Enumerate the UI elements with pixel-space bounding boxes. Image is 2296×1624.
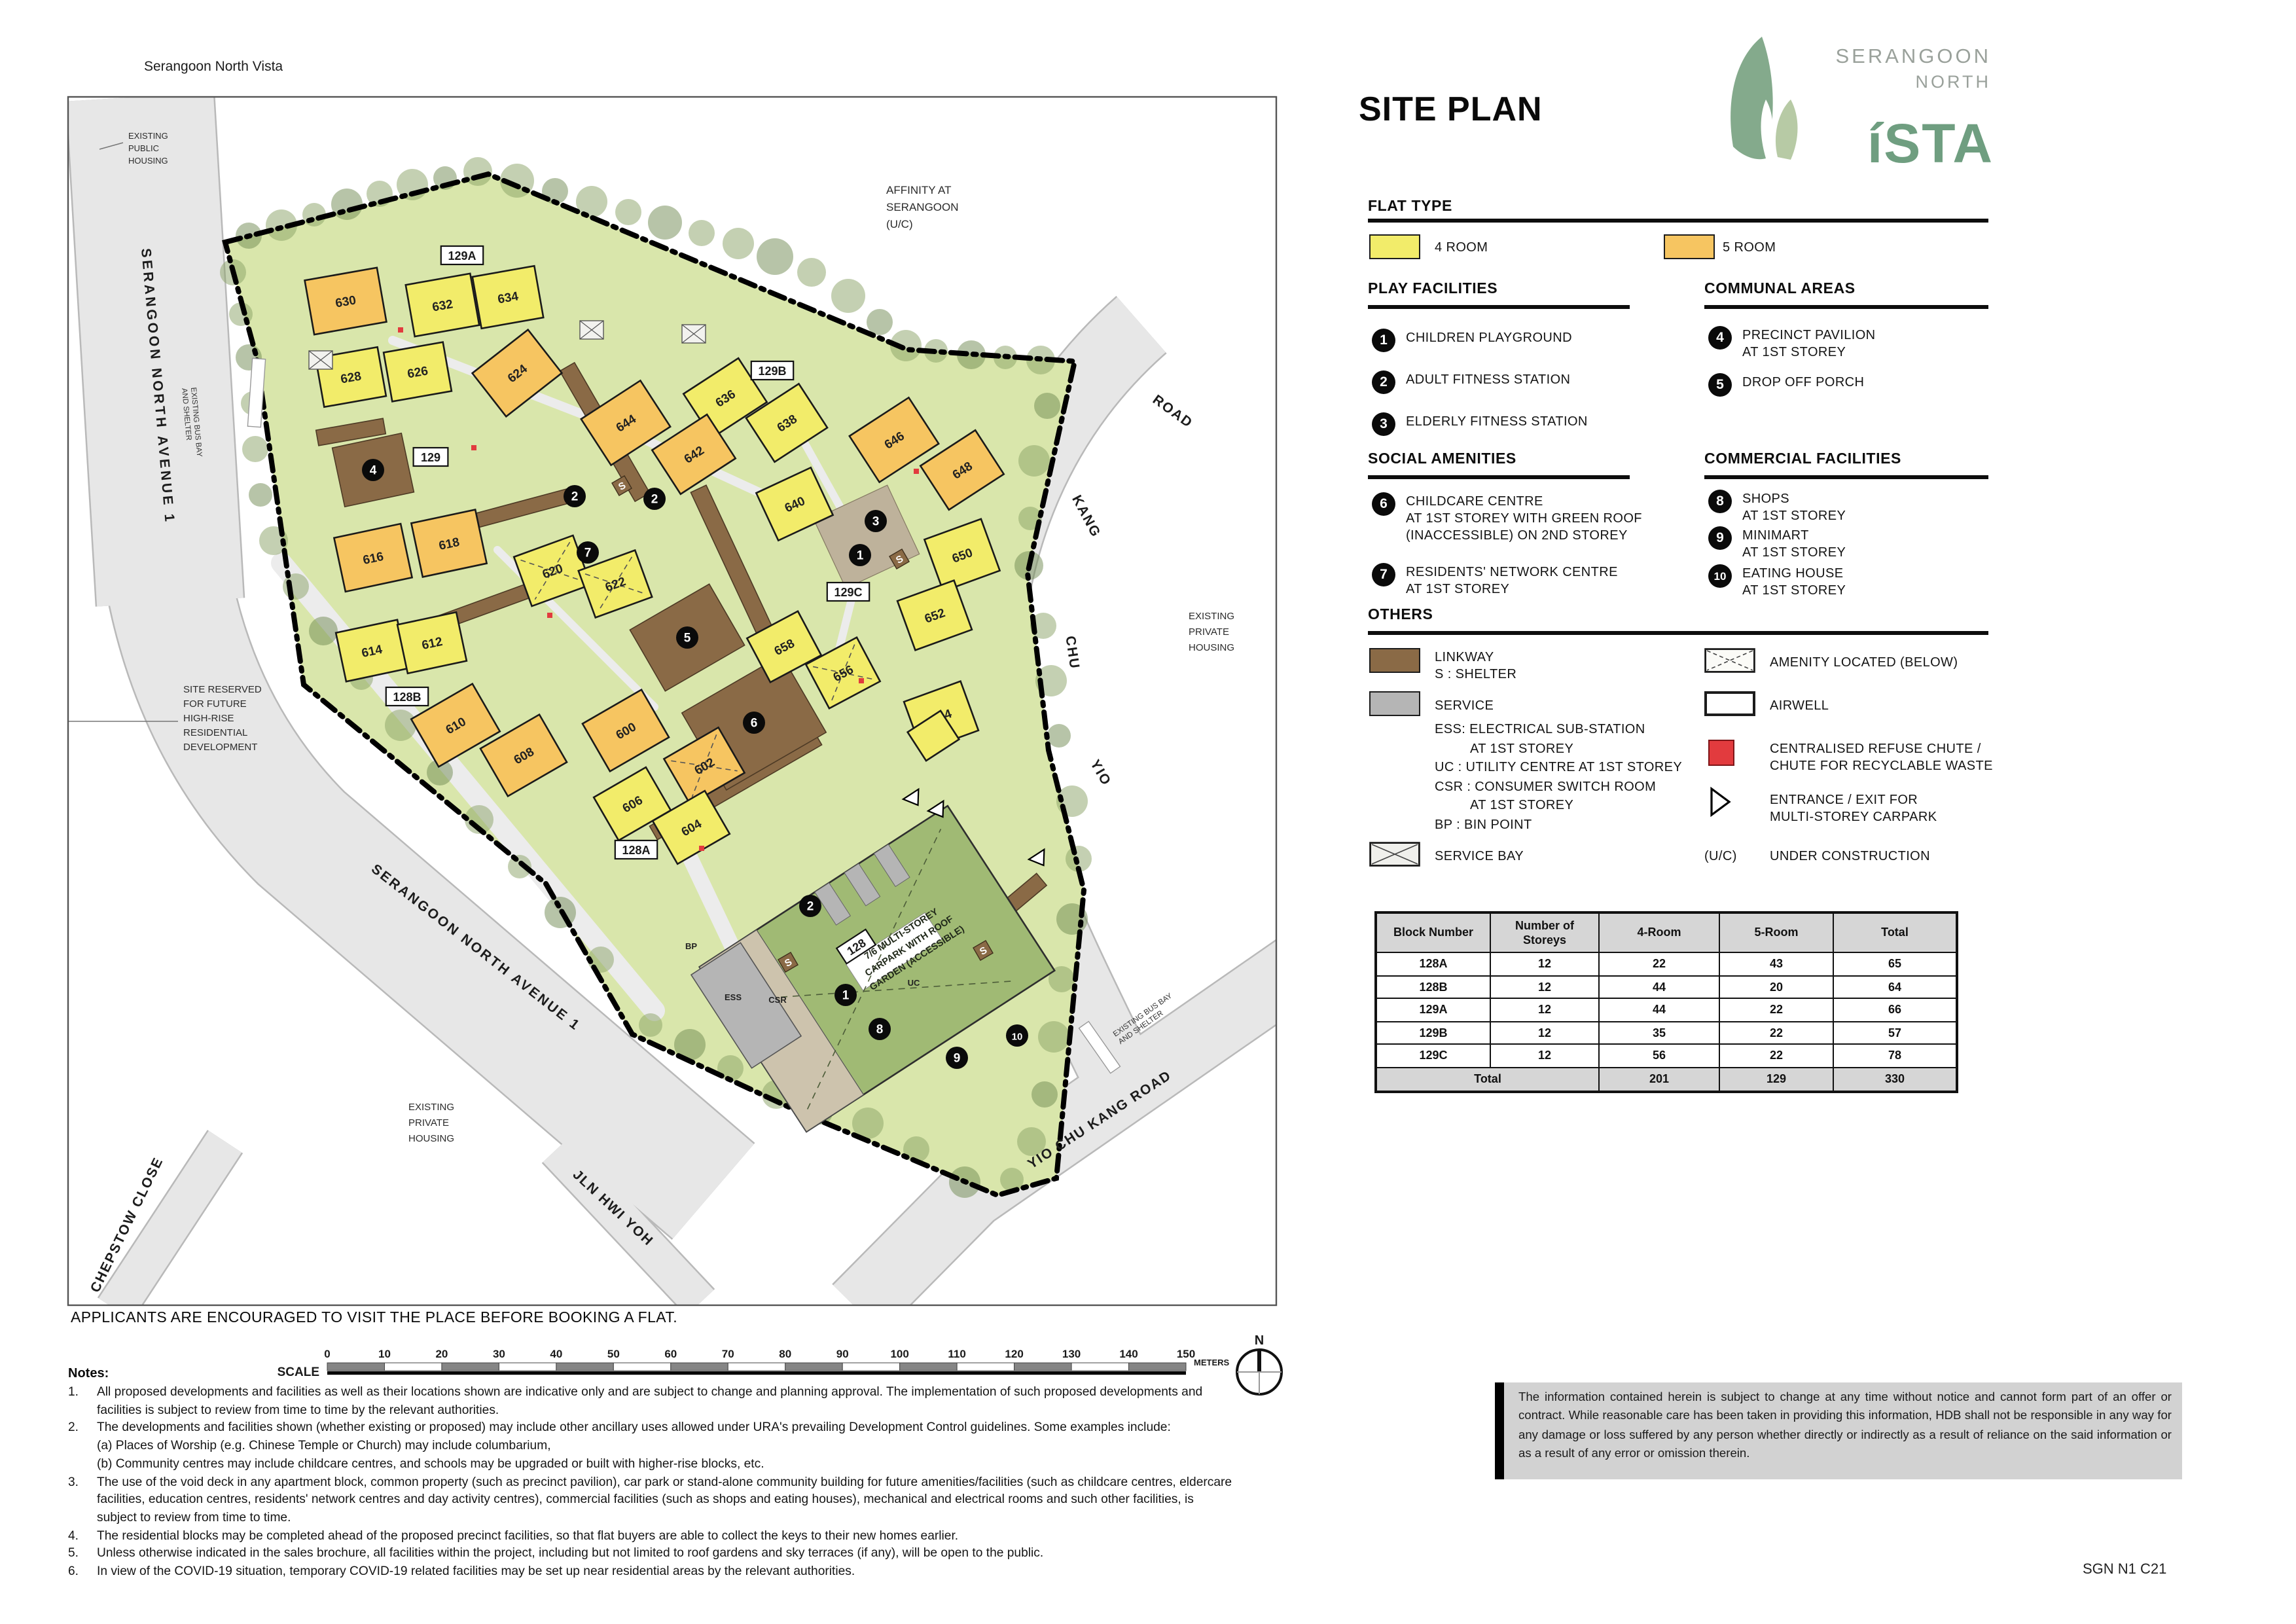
- flat-4room-label: 4 ROOM: [1435, 240, 1488, 257]
- site-plan-page: 7/6 MULTI-STOREYCARPARK WITH ROOFGARDEN …: [0, 0, 2296, 1623]
- applicants-note: APPLICANTS ARE ENCOURAGED TO VISIT THE P…: [71, 1310, 677, 1326]
- tree-icon: [309, 617, 338, 645]
- scale-tick: 40: [550, 1348, 562, 1360]
- facility-marker-label: 5: [684, 631, 691, 645]
- tree-icon: [1047, 724, 1071, 748]
- block-tag-128B: 128B: [386, 687, 428, 706]
- road-label: KANG: [1069, 493, 1103, 540]
- doc-ref: SGN N1 C21: [2083, 1562, 2166, 1578]
- flat-5room-label: 5 ROOM: [1723, 240, 1776, 257]
- area-label: PRIVATE: [408, 1117, 449, 1128]
- tree-icon: [1038, 1021, 1069, 1053]
- tree-icon: [723, 228, 754, 259]
- building-626: 626: [384, 342, 452, 402]
- legend-item-minimart: 9 MINIMARTAT 1ST STOREY: [1708, 526, 1846, 562]
- table-total-row: Total201129330: [1376, 1067, 1957, 1091]
- block-tag-129A: 129A: [441, 246, 483, 264]
- facility-marker-2: 2: [799, 895, 821, 917]
- note-2-line-3: (b) Community centres may include childc…: [68, 1456, 1482, 1473]
- scale-tick: 90: [836, 1348, 849, 1360]
- note-6-line-1: 6.In view of the COVID-19 situation, tem…: [68, 1563, 1482, 1581]
- refuse-chute-icon: [859, 678, 864, 683]
- marker-4-badge: 4: [1708, 326, 1732, 350]
- block-tag-label: 129A: [448, 249, 476, 262]
- service-bay-swatch: [1369, 842, 1420, 867]
- scale-bar: SCALE01020304050607080901001101201301401…: [278, 1348, 1230, 1379]
- note-1-line-2: facilities is subject to review from tim…: [68, 1401, 1482, 1419]
- facility-marker-1: 1: [834, 984, 857, 1006]
- uc-abbr: (U/C): [1704, 848, 1737, 865]
- refuse-chute-icon: [547, 613, 552, 618]
- service-bay-icon: [309, 351, 332, 369]
- facility-marker-2: 2: [564, 485, 586, 507]
- scale-tick: 130: [1062, 1348, 1081, 1360]
- facility-marker-label: 10: [1012, 1031, 1023, 1042]
- linkway-swatch: [1369, 648, 1420, 673]
- scale-label: SCALE: [278, 1365, 319, 1379]
- facility-marker-label: 2: [807, 899, 814, 913]
- tree-icon: [1000, 1168, 1024, 1191]
- facility-marker-7: 7: [577, 541, 599, 564]
- area-label: HIGH-RISE: [183, 713, 234, 724]
- map-title: Serangoon North Vista: [144, 59, 283, 75]
- legend-item-childcare-centre: 6 CHILDCARE CENTREAT 1ST STOREY WITH GRE…: [1372, 492, 1642, 545]
- scale-tick: 150: [1177, 1348, 1195, 1360]
- disclaimer-box: The information contained herein is subj…: [1495, 1382, 2182, 1479]
- uc-label: UNDER CONSTRUCTION: [1770, 848, 1930, 865]
- serangoon-north-vista-logo: SERANGOON NORTH íSTA: [1723, 34, 1998, 181]
- airwell-label: AIRWELL: [1770, 698, 1829, 715]
- area-label: SITE RESERVED: [183, 684, 262, 695]
- compass-north-label: N: [1255, 1333, 1264, 1348]
- unit-count-table: Block Number Number of Storeys 4-Room 5-…: [1374, 911, 1958, 1092]
- social-divider: [1368, 475, 1630, 478]
- legend-item-adult-fitness: 2 ADULT FITNESS STATION: [1372, 370, 1570, 394]
- utility-label-UC: UC: [908, 978, 920, 988]
- play-facilities-heading: PLAY FACILITIES: [1368, 281, 1498, 297]
- communal-areas-heading: COMMUNAL AREAS: [1704, 281, 1856, 297]
- tree-icon: [242, 436, 268, 462]
- note-5-line-1: 5.Unless otherwise indicated in the sale…: [68, 1545, 1482, 1563]
- flat-4room-swatch: [1369, 234, 1420, 259]
- communal-divider: [1704, 305, 1988, 308]
- service-bay-icon: [580, 321, 603, 339]
- road-label: CHU: [1062, 635, 1082, 670]
- area-label: HOUSING: [408, 1133, 454, 1144]
- utility-label-BP: BP: [685, 941, 697, 951]
- refuse-chute-icon: [398, 327, 403, 333]
- commercial-divider: [1704, 475, 1988, 478]
- utility-label-ESS: ESS: [725, 992, 742, 1002]
- facility-marker-3: 3: [865, 510, 887, 532]
- notes-list: 1.All proposed developments and faciliti…: [68, 1384, 1482, 1581]
- area-label: SERANGOON: [886, 201, 959, 213]
- tree-icon: [576, 186, 607, 217]
- service-bay-icon: [682, 325, 706, 343]
- tree-icon: [1034, 393, 1060, 419]
- table-row: 129B12352257: [1376, 1021, 1957, 1044]
- area-label: (U/C): [886, 218, 913, 230]
- building-630: 630: [305, 268, 387, 334]
- tree-icon: [615, 199, 641, 225]
- facility-marker-1: 1: [849, 544, 871, 566]
- facility-marker-6: 6: [743, 712, 765, 734]
- tree-icon: [639, 1013, 662, 1037]
- table-row: 129C12562278: [1376, 1044, 1957, 1067]
- site-plan-map: 7/6 MULTI-STOREYCARPARK WITH ROOFGARDEN …: [0, 0, 2296, 1623]
- block-tag-label: 128A: [622, 844, 650, 857]
- logo-line3: íSTA: [1867, 113, 1994, 174]
- scale-unit: METERS: [1194, 1358, 1230, 1367]
- refuse-chute-icon: [471, 445, 476, 450]
- legend-item-children-playground: 1 CHILDREN PLAYGROUND: [1372, 329, 1572, 352]
- area-label: EXISTING: [128, 131, 168, 141]
- note-4-line-1: 4.The residential blocks may be complete…: [68, 1527, 1482, 1545]
- refuse-chute-icon: [699, 846, 704, 851]
- road-label: YIO: [1087, 757, 1114, 789]
- facility-marker-label: 6: [751, 716, 758, 730]
- block-tag-label: 129C: [834, 586, 862, 599]
- scale-tick: 50: [607, 1348, 620, 1360]
- legend-item-elderly-fitness: 3 ELDERLY FITNESS STATION: [1372, 412, 1588, 436]
- marker-7-badge: 7: [1372, 563, 1395, 586]
- refuse-chute-swatch: [1708, 740, 1734, 766]
- facility-marker-label: 2: [651, 492, 658, 506]
- notes-heading: Notes:: [68, 1367, 109, 1381]
- flat-type-divider: [1368, 219, 1988, 222]
- facility-marker-label: 4: [370, 463, 377, 477]
- tree-icon: [1018, 445, 1050, 477]
- utility-label-CSR: CSR: [768, 995, 787, 1005]
- marker-6-badge: 6: [1372, 492, 1395, 516]
- facility-marker-label: 2: [571, 490, 579, 503]
- tree-icon: [249, 483, 272, 507]
- note-1-line-1: 1.All proposed developments and faciliti…: [68, 1384, 1482, 1401]
- scale-tick: 100: [890, 1348, 908, 1360]
- scale-tick: 120: [1005, 1348, 1023, 1360]
- area-label: DEVELOPMENT: [183, 742, 257, 753]
- tree-icon: [757, 238, 793, 275]
- marker-1-badge: 1: [1372, 329, 1395, 352]
- block-tag-129: 129: [414, 448, 448, 466]
- others-heading: OTHERS: [1368, 607, 1433, 623]
- area-label: AFFINITY AT: [886, 184, 952, 196]
- flat-5room-swatch: [1664, 234, 1715, 259]
- tree-icon: [1031, 1081, 1058, 1108]
- marker-10-badge: 10: [1708, 564, 1732, 588]
- scale-tick: 140: [1119, 1348, 1138, 1360]
- logo-line1: SERANGOON: [1835, 45, 1991, 67]
- table-row: 128A12224365: [1376, 952, 1957, 975]
- tree-icon: [689, 220, 715, 246]
- table-header-row: Block Number Number of Storeys 4-Room 5-…: [1376, 912, 1957, 952]
- scale-tick: 10: [378, 1348, 391, 1360]
- service-bay-label: SERVICE BAY: [1435, 848, 1524, 865]
- scale-tick: 70: [722, 1348, 734, 1360]
- facility-marker-2: 2: [643, 488, 666, 510]
- area-label: EXISTING: [1189, 611, 1234, 622]
- area-label: PUBLIC: [128, 143, 159, 153]
- linkway-label: LINKWAY S : SHELTER: [1435, 649, 1516, 683]
- social-amenities-heading: SOCIAL AMENITIES: [1368, 452, 1516, 467]
- legend-item-shops: 8 SHOPSAT 1ST STOREY: [1708, 490, 1846, 525]
- service-definitions: ESS: ELECTRICAL SUB-STATION AT 1ST STORE…: [1435, 721, 1775, 836]
- tree-icon: [831, 279, 865, 313]
- scale-tick: 20: [435, 1348, 448, 1360]
- facility-marker-label: 9: [954, 1051, 961, 1065]
- building-632: 632: [406, 274, 479, 336]
- logo-line2: NORTH: [1915, 72, 1991, 92]
- scale-tick: 0: [324, 1348, 330, 1360]
- note-3-line-2: facilities, education centres, residents…: [68, 1491, 1482, 1509]
- marker-5-badge: 5: [1708, 373, 1732, 397]
- block-tag-label: 129B: [758, 365, 786, 378]
- facility-marker-10: 10: [1006, 1024, 1028, 1047]
- block-tag-129C: 129C: [827, 583, 869, 601]
- area-label: EXISTING: [408, 1102, 454, 1113]
- marker-8-badge: 8: [1708, 490, 1732, 513]
- service-swatch: [1369, 691, 1420, 716]
- facility-marker-label: 7: [584, 546, 592, 560]
- scale-tick: 60: [664, 1348, 677, 1360]
- block-tag-128A: 128A: [615, 840, 657, 859]
- tree-icon: [385, 710, 416, 741]
- refuse-chute-label: CENTRALISED REFUSE CHUTE / CHUTE FOR REC…: [1770, 741, 1993, 775]
- commercial-facilities-heading: COMMERCIAL FACILITIES: [1704, 452, 1901, 467]
- block-tag-label: 128B: [393, 691, 421, 704]
- facility-marker-label: 1: [857, 549, 864, 562]
- amenity-below-label: AMENITY LOCATED (BELOW): [1770, 655, 1958, 672]
- block-tag-129B: 129B: [751, 361, 793, 380]
- marker-9-badge: 9: [1708, 526, 1732, 550]
- tree-icon: [648, 206, 682, 240]
- area-label: HOUSING: [1189, 642, 1234, 653]
- flat-type-heading: FLAT TYPE: [1368, 199, 1452, 215]
- service-label: SERVICE: [1435, 698, 1494, 715]
- scale-tick: 110: [948, 1348, 965, 1360]
- table-row: 129A12442266: [1376, 998, 1957, 1021]
- refuse-chute-icon: [914, 469, 919, 474]
- area-label: PRIVATE: [1189, 626, 1229, 638]
- legend-item-residents-network: 7 RESIDENTS' NETWORK CENTREAT 1ST STOREY: [1372, 563, 1618, 598]
- others-divider: [1368, 631, 1988, 634]
- building-634: 634: [473, 266, 543, 328]
- scale-tick: 80: [779, 1348, 791, 1360]
- legend-item-precinct-pavilion: 4 PRECINCT PAVILIONAT 1ST STOREY: [1708, 326, 1876, 361]
- facility-marker-label: 3: [872, 514, 880, 528]
- table-row: 128B12442064: [1376, 975, 1957, 998]
- facility-marker-8: 8: [869, 1018, 891, 1040]
- airwell-swatch: [1704, 691, 1755, 716]
- marker-3-badge: 3: [1372, 412, 1395, 436]
- carpark-entrance-icon: [1710, 787, 1732, 817]
- area-label: RESIDENTIAL: [183, 727, 247, 738]
- note-2-line-1: 2.The developments and facilities shown …: [68, 1420, 1482, 1437]
- note-3-line-1: 3.The use of the void deck in any apartm…: [68, 1473, 1482, 1491]
- scale-tick: 30: [493, 1348, 505, 1360]
- road-label: ROAD: [1150, 392, 1196, 431]
- tree-icon: [797, 258, 826, 287]
- page-title: SITE PLAN: [1359, 89, 1543, 130]
- facility-marker-4: 4: [362, 459, 384, 481]
- facility-marker-5: 5: [676, 626, 698, 649]
- area-label: FOR FUTURE: [183, 698, 247, 710]
- legend-item-eating-house: 10 EATING HOUSEAT 1ST STOREY: [1708, 564, 1846, 600]
- legend-item-drop-off-porch: 5 DROP OFF PORCH: [1708, 373, 1864, 397]
- amenity-below-swatch: [1704, 648, 1755, 673]
- leaf-logo-icon: [1731, 37, 1797, 160]
- facility-marker-label: 1: [842, 988, 850, 1002]
- note-2-line-2: (a) Places of Worship (e.g. Chinese Temp…: [68, 1437, 1482, 1455]
- carpark-entrance-label: ENTRANCE / EXIT FOR MULTI-STOREY CARPARK: [1770, 792, 1937, 826]
- tree-icon: [867, 309, 893, 335]
- facility-marker-label: 8: [876, 1022, 884, 1036]
- facility-marker-9: 9: [946, 1047, 968, 1069]
- marker-2-badge: 2: [1372, 370, 1395, 394]
- note-3-line-3: subject to review from time to time.: [68, 1509, 1482, 1527]
- block-tag-label: 129: [421, 451, 440, 464]
- play-divider: [1368, 305, 1630, 308]
- map-content: 7/6 MULTI-STOREYCARPARK WITH ROOFGARDEN …: [68, 97, 1309, 1309]
- area-label: HOUSING: [128, 156, 168, 166]
